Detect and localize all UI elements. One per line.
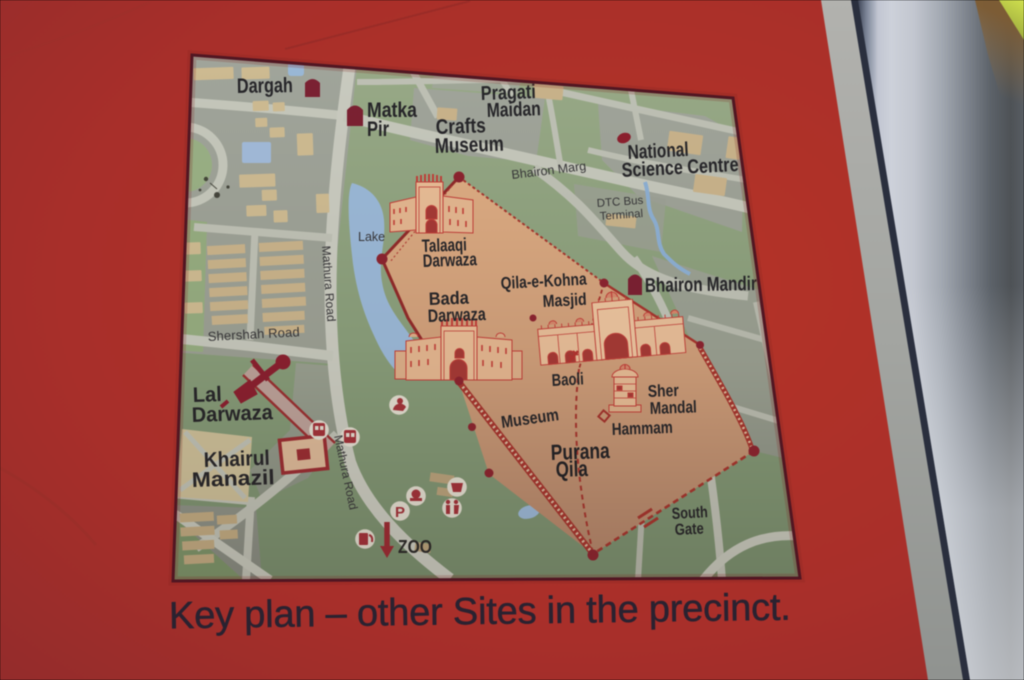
svg-text:Key plan – other Sites in the: Key plan – other Sites in the precinct. bbox=[169, 587, 791, 638]
